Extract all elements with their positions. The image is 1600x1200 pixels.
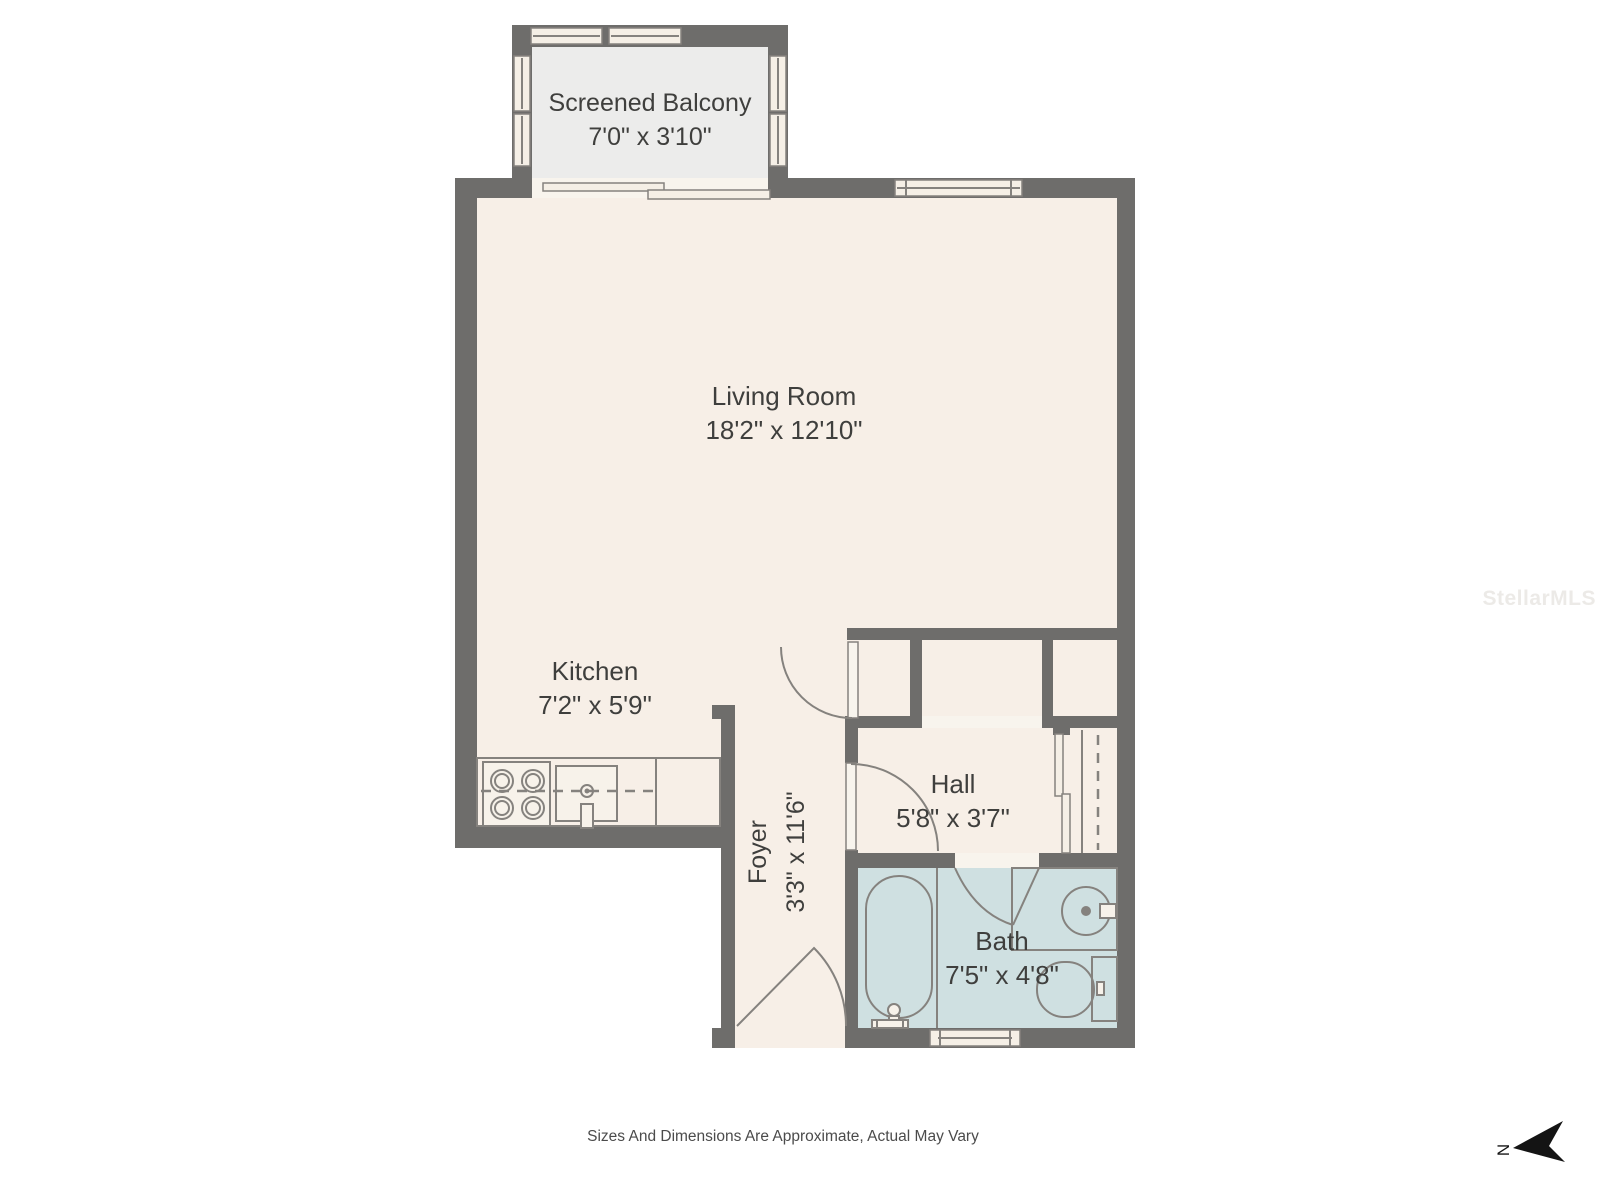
room-name: Hall — [896, 767, 1010, 801]
bath-door-opening — [955, 853, 1039, 868]
foyer-label: Foyer 3'3" x 11'6" — [739, 791, 815, 912]
north-letter: N — [1494, 1144, 1514, 1156]
watermark-text: StellarMLS — [1482, 587, 1596, 611]
stove-icon — [483, 762, 550, 826]
room-dims: 7'5" x 4'8" — [945, 958, 1059, 992]
room-name: Screened Balcony — [549, 86, 752, 120]
room-name: Foyer — [739, 791, 777, 912]
room-dims: 5'8" x 3'7" — [896, 801, 1010, 835]
balcony-label: Screened Balcony 7'0" x 3'10" — [549, 86, 752, 154]
kitchen-label: Kitchen 7'2" x 5'9" — [538, 654, 652, 722]
floor-plan-page: Screened Balcony 7'0" x 3'10" Living Roo… — [0, 0, 1600, 1200]
closet-cased-opening — [922, 716, 1042, 728]
hall-label: Hall 5'8" x 3'7" — [896, 767, 1010, 835]
north-arrow-icon — [1513, 1121, 1565, 1162]
disclaimer-text: Sizes And Dimensions Are Approximate, Ac… — [587, 1128, 979, 1146]
room-name: Kitchen — [538, 654, 652, 688]
floor-plan-drawing — [0, 0, 1600, 1200]
room-dims: 3'3" x 11'6" — [777, 791, 815, 912]
room-dims: 7'0" x 3'10" — [549, 120, 752, 154]
room-dims: 18'2" x 12'10" — [705, 413, 862, 447]
room-name: Living Room — [705, 379, 862, 413]
entry-opening — [735, 1028, 845, 1048]
living-room-label: Living Room 18'2" x 12'10" — [705, 379, 862, 447]
kitchen-sink-icon — [556, 766, 617, 828]
room-name: Bath — [945, 924, 1059, 958]
bath-label: Bath 7'5" x 4'8" — [945, 924, 1059, 992]
room-dims: 7'2" x 5'9" — [538, 688, 652, 722]
